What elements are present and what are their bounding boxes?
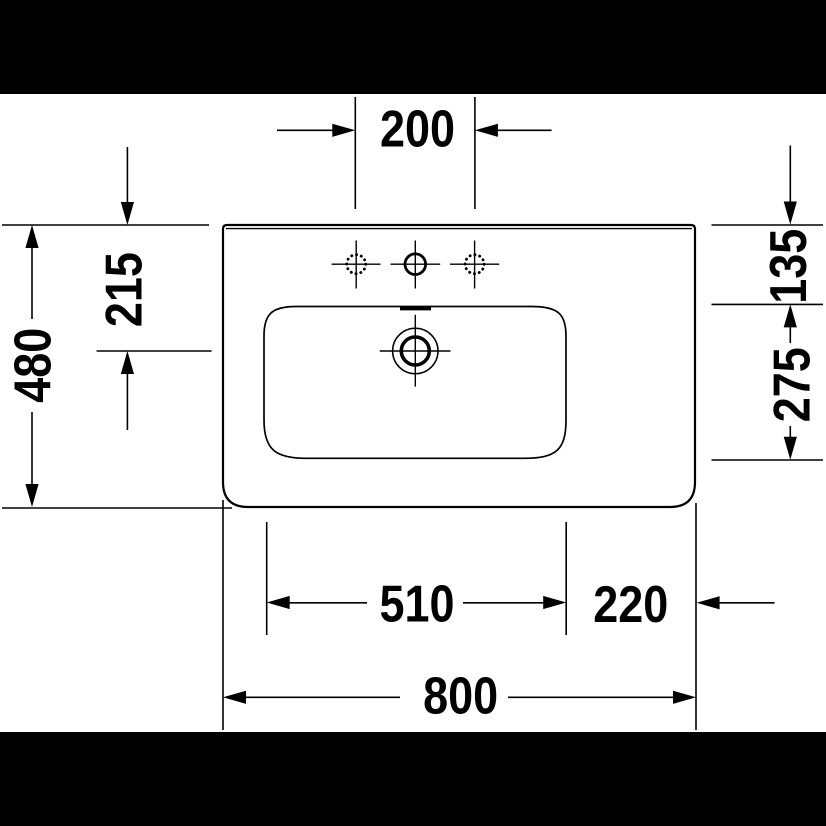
svg-text:215: 215 (96, 252, 154, 327)
svg-text:275: 275 (764, 347, 822, 422)
svg-text:800: 800 (423, 668, 498, 726)
svg-text:220: 220 (593, 576, 668, 634)
svg-text:200: 200 (380, 100, 455, 158)
svg-text:480: 480 (5, 328, 63, 403)
svg-text:510: 510 (380, 576, 455, 634)
svg-text:135: 135 (760, 229, 818, 304)
